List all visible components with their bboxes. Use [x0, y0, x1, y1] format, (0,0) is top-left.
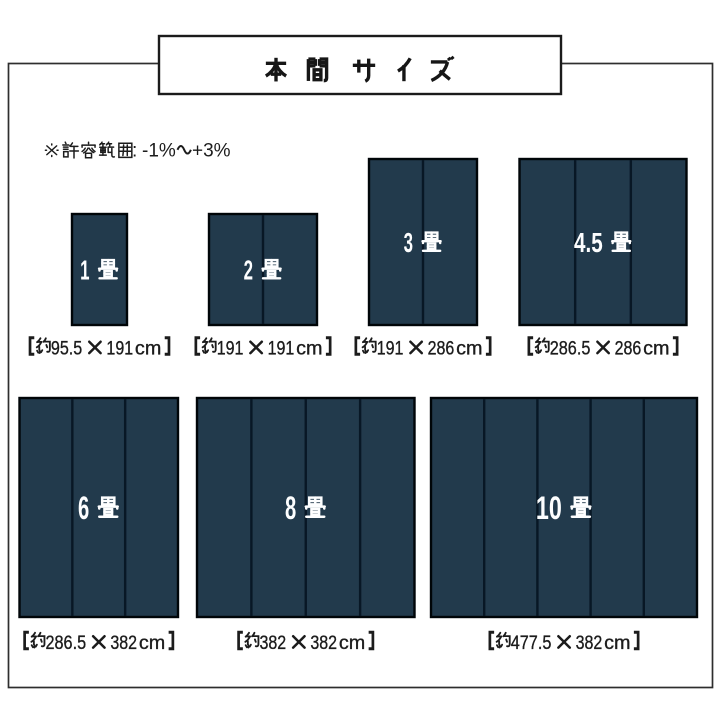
svg-text:3: 3: [404, 227, 413, 258]
svg-text:cm: cm: [456, 337, 482, 359]
svg-text:cm: cm: [339, 632, 365, 654]
svg-text:191: 191: [268, 337, 295, 359]
svg-text:+3%: +3%: [192, 141, 231, 162]
svg-text:cm: cm: [643, 337, 669, 359]
svg-text:cm: cm: [604, 632, 630, 654]
svg-text:191: 191: [377, 337, 404, 359]
svg-text:191: 191: [106, 337, 133, 359]
svg-text::: :: [132, 141, 137, 162]
svg-text:477.5: 477.5: [511, 632, 552, 654]
svg-text:286.5: 286.5: [45, 632, 86, 654]
svg-text:4.5: 4.5: [574, 227, 603, 258]
svg-text:8: 8: [285, 490, 296, 526]
svg-text:-1%: -1%: [142, 141, 176, 162]
svg-text:382: 382: [310, 632, 337, 654]
svg-text:6: 6: [78, 490, 89, 526]
svg-text:382: 382: [576, 632, 603, 654]
svg-text:191: 191: [217, 337, 244, 359]
svg-text:cm: cm: [135, 337, 161, 359]
svg-text:2: 2: [244, 255, 253, 286]
svg-text:95.5: 95.5: [51, 337, 82, 359]
svg-text:382: 382: [259, 632, 286, 654]
svg-text:286: 286: [428, 337, 455, 359]
svg-text:cm: cm: [139, 632, 165, 654]
svg-text:1: 1: [80, 255, 89, 286]
svg-text:382: 382: [110, 632, 137, 654]
svg-text:286: 286: [615, 337, 642, 359]
svg-text:10: 10: [536, 490, 562, 526]
svg-text:cm: cm: [296, 337, 322, 359]
svg-text:286.5: 286.5: [550, 337, 591, 359]
